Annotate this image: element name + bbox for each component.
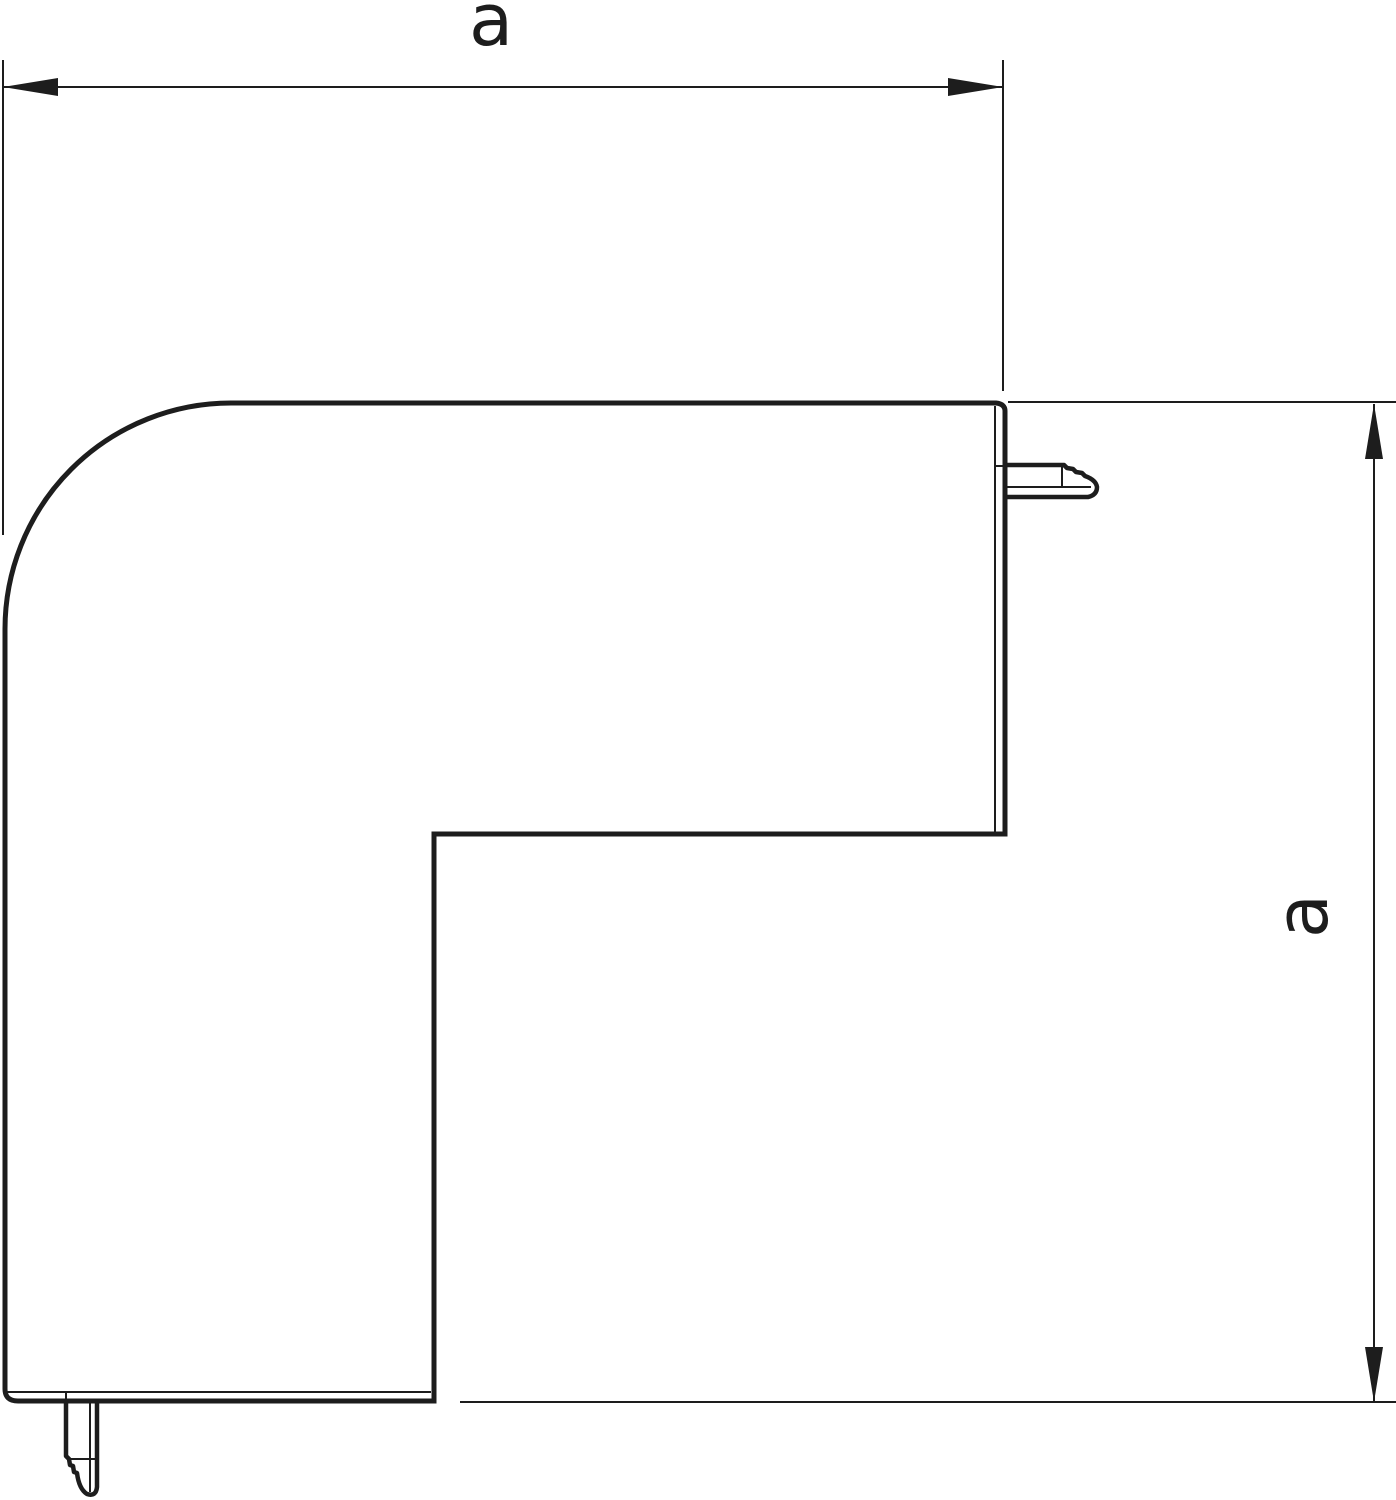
top-dimension-arrow-left — [3, 78, 58, 96]
top-dimension-arrow-right — [948, 78, 1003, 96]
retaining-clip-right — [1005, 465, 1097, 497]
corner-piece-outline — [5, 403, 1005, 1401]
right-dimension-arrow-up — [1365, 404, 1383, 459]
right-dimension-arrow-down — [1365, 1347, 1383, 1402]
right-dimension: a — [460, 402, 1396, 1402]
corner-piece-drawing: a a — [0, 0, 1396, 1500]
top-dimension: a — [3, 0, 1003, 535]
retaining-clip-bottom — [66, 1401, 97, 1495]
corner-piece — [5, 403, 1097, 1495]
right-dimension-label: a — [1260, 894, 1344, 938]
top-dimension-label: a — [469, 0, 513, 62]
technical-drawing-page: a a — [0, 0, 1396, 1500]
